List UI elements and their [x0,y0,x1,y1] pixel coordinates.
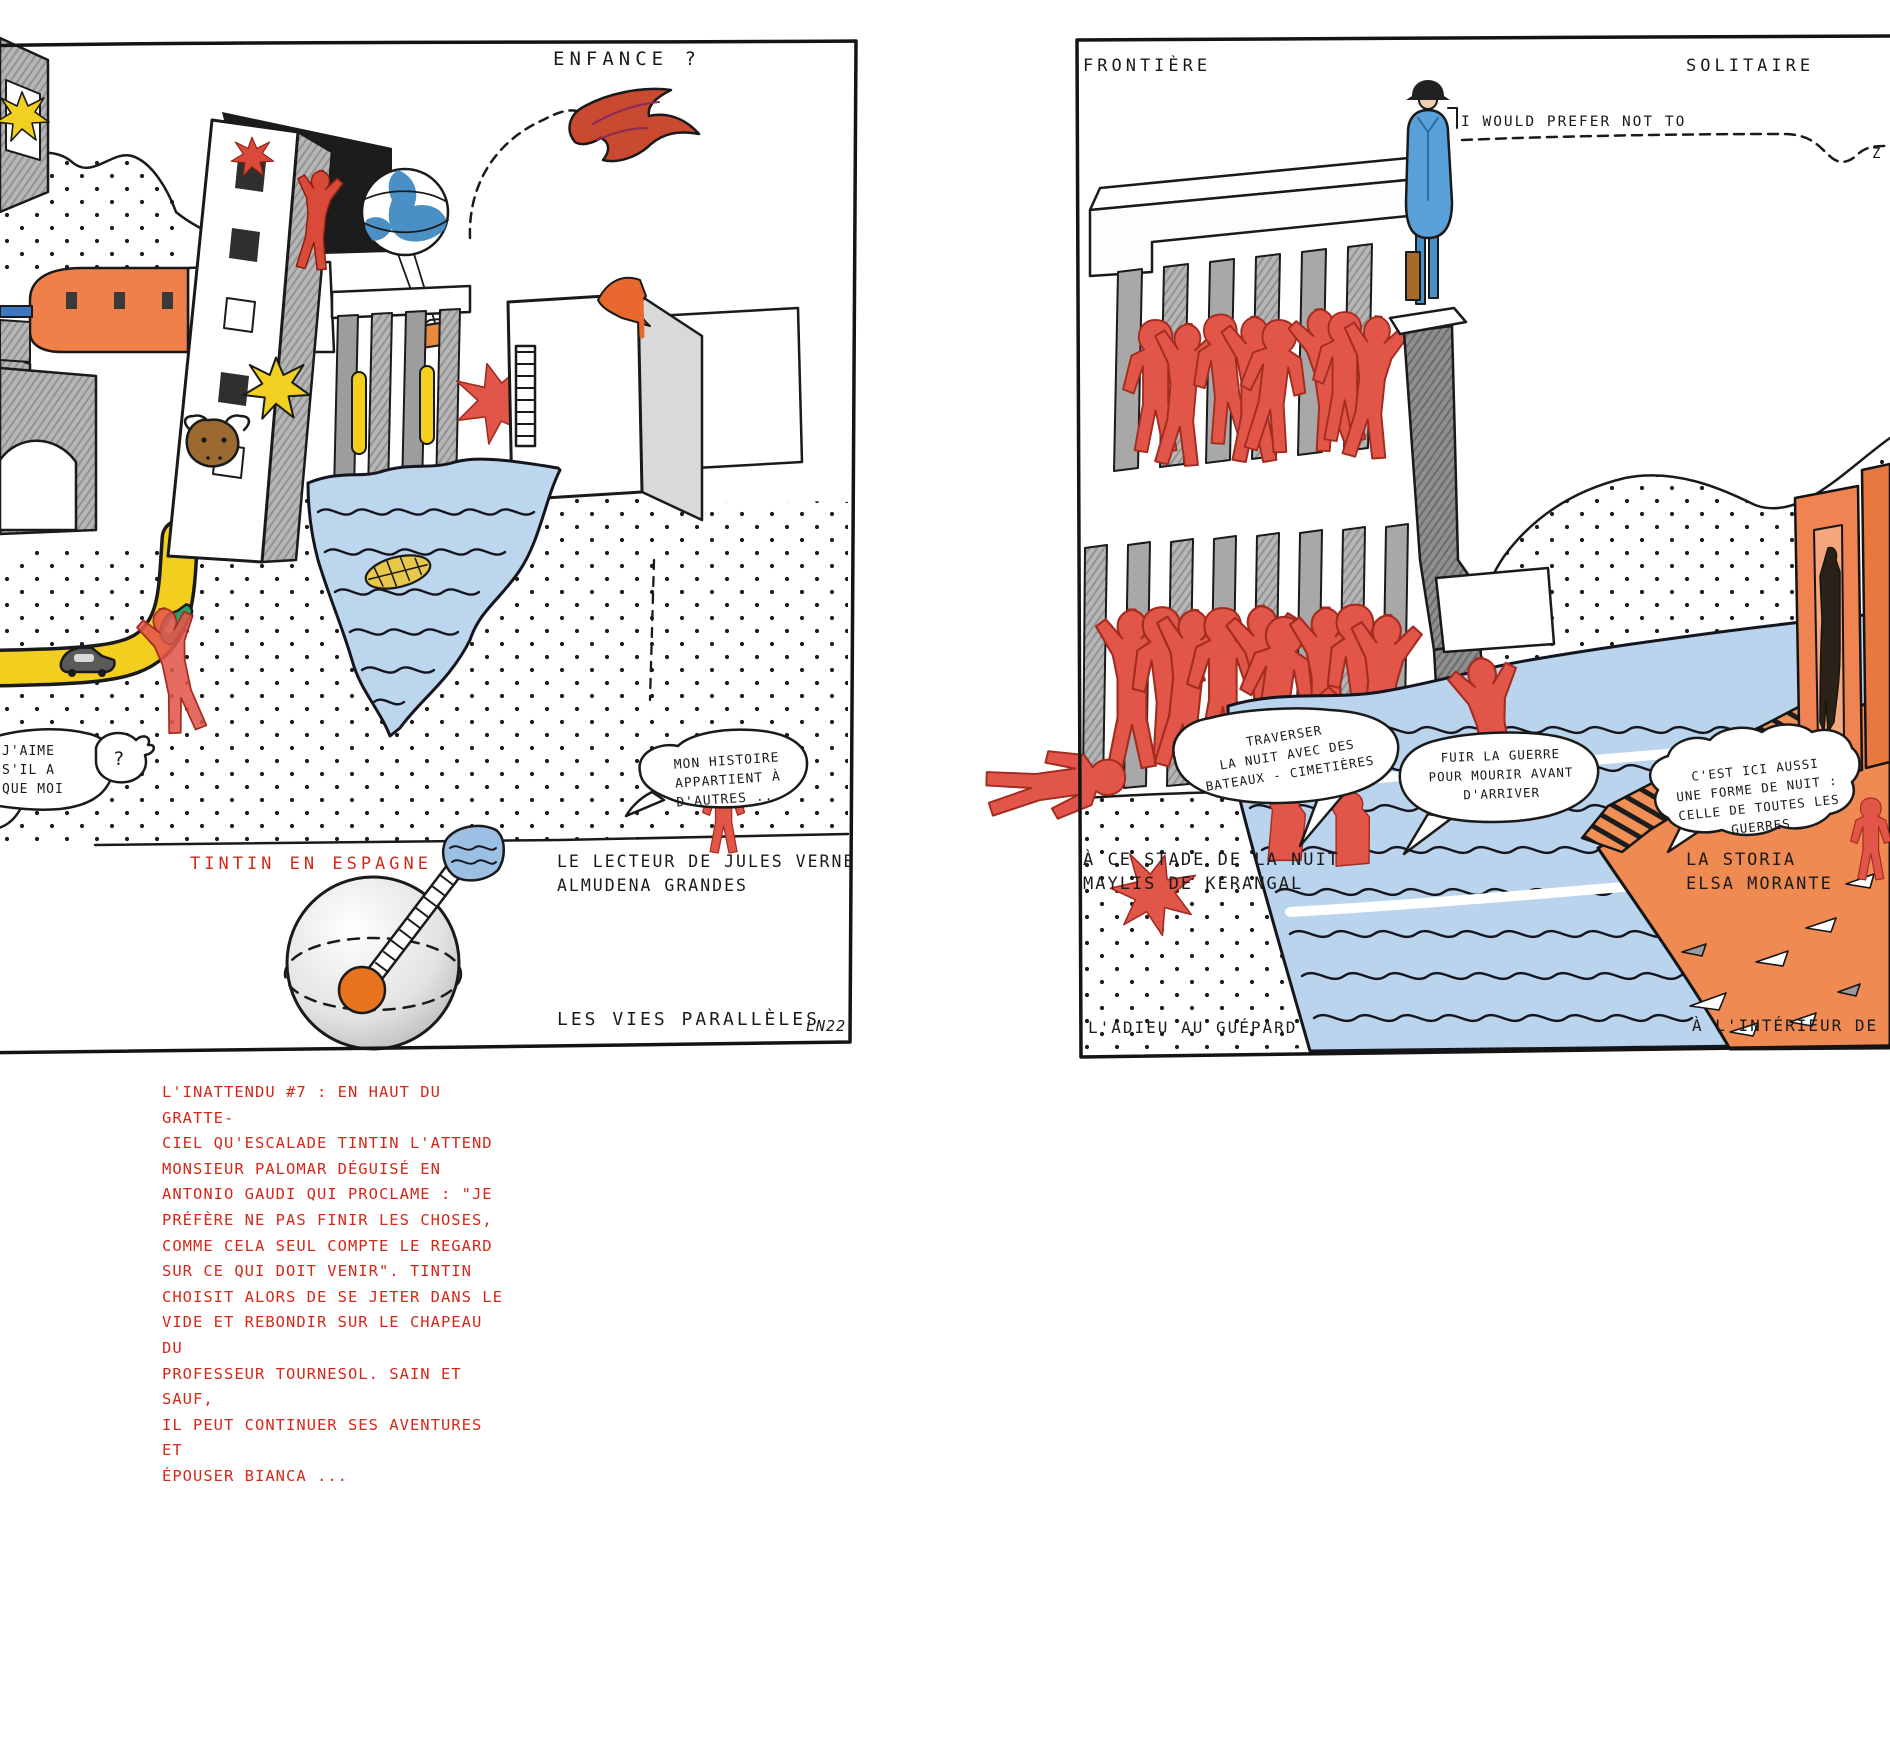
bubble-text-question: ? [113,746,124,774]
caption-adieu-guepard: L'ADIEU AU GUÉPARD [1088,1016,1297,1040]
caption-stade-nuit: À CE STADE DE LA NUIT MAYLIS DE KERANGAL [1083,848,1340,896]
orange-drip [641,300,642,336]
artist-signature: LN22 [806,1016,846,1038]
right-panel-drawing [983,36,1890,1057]
left-panel-title: ENFANCE ? [553,46,701,74]
drawing-canvas [0,0,1890,1754]
blue-water-chunk [443,826,504,880]
yellow-lamp [420,366,434,444]
caption-vies-paralleles: LES VIES PARALLÈLES [557,1008,820,1032]
white-ledge [1436,568,1554,652]
red-swallow-bird [470,89,699,238]
star-wall-top-left [0,38,49,212]
dashed-speech-line [1462,134,1886,162]
tunnel-arch [0,368,96,534]
briefcase [1406,252,1420,300]
caption-lecteur-jules-verne: LE LECTEUR DE JULES VERNE ALMUDENA GRAND… [557,850,855,898]
yellow-lamp [352,372,366,454]
bubble-text-jaime: J'AIME S'IL A QUE MOI [2,742,64,799]
artwork-spread: { "artwork": { "type": "hand-drawn illus… [0,0,1890,1754]
label-frontiere: FRONTIÈRE [1083,54,1211,79]
bubble-text-histoire: MON HISTOIRE APPARTIENT À D'AUTRES ... [656,747,800,814]
orange-hub [339,967,385,1013]
left-panel-drawing [0,38,856,1053]
quote-bartleby: I WOULD PREFER NOT TO [1461,112,1686,133]
bubble-text-fuir: FUIR LA GUERRE POUR MOURIR AVANT D'ARRIV… [1411,743,1591,806]
dashed-flight-path [470,110,580,238]
bartleby-figure [1406,80,1457,304]
blue-stripe [0,306,32,317]
caption-la-storia: LA STORIA ELSA MORANTE [1686,848,1833,896]
hat [1406,80,1450,100]
white-platform [1390,308,1466,334]
ladder-window [516,346,535,446]
red-handwritten-note: L'INATTENDU #7 : EN HAUT DU GRATTE- CIEL… [162,1080,507,1490]
quote-z: Z [1872,144,1880,164]
label-tintin-en-espagne: TINTIN EN ESPAGNE [190,852,432,877]
label-solitaire: SOLITAIRE [1686,54,1814,79]
caption-interieur-soi: À L'INTÉRIEUR DE SOI [1692,1014,1890,1038]
